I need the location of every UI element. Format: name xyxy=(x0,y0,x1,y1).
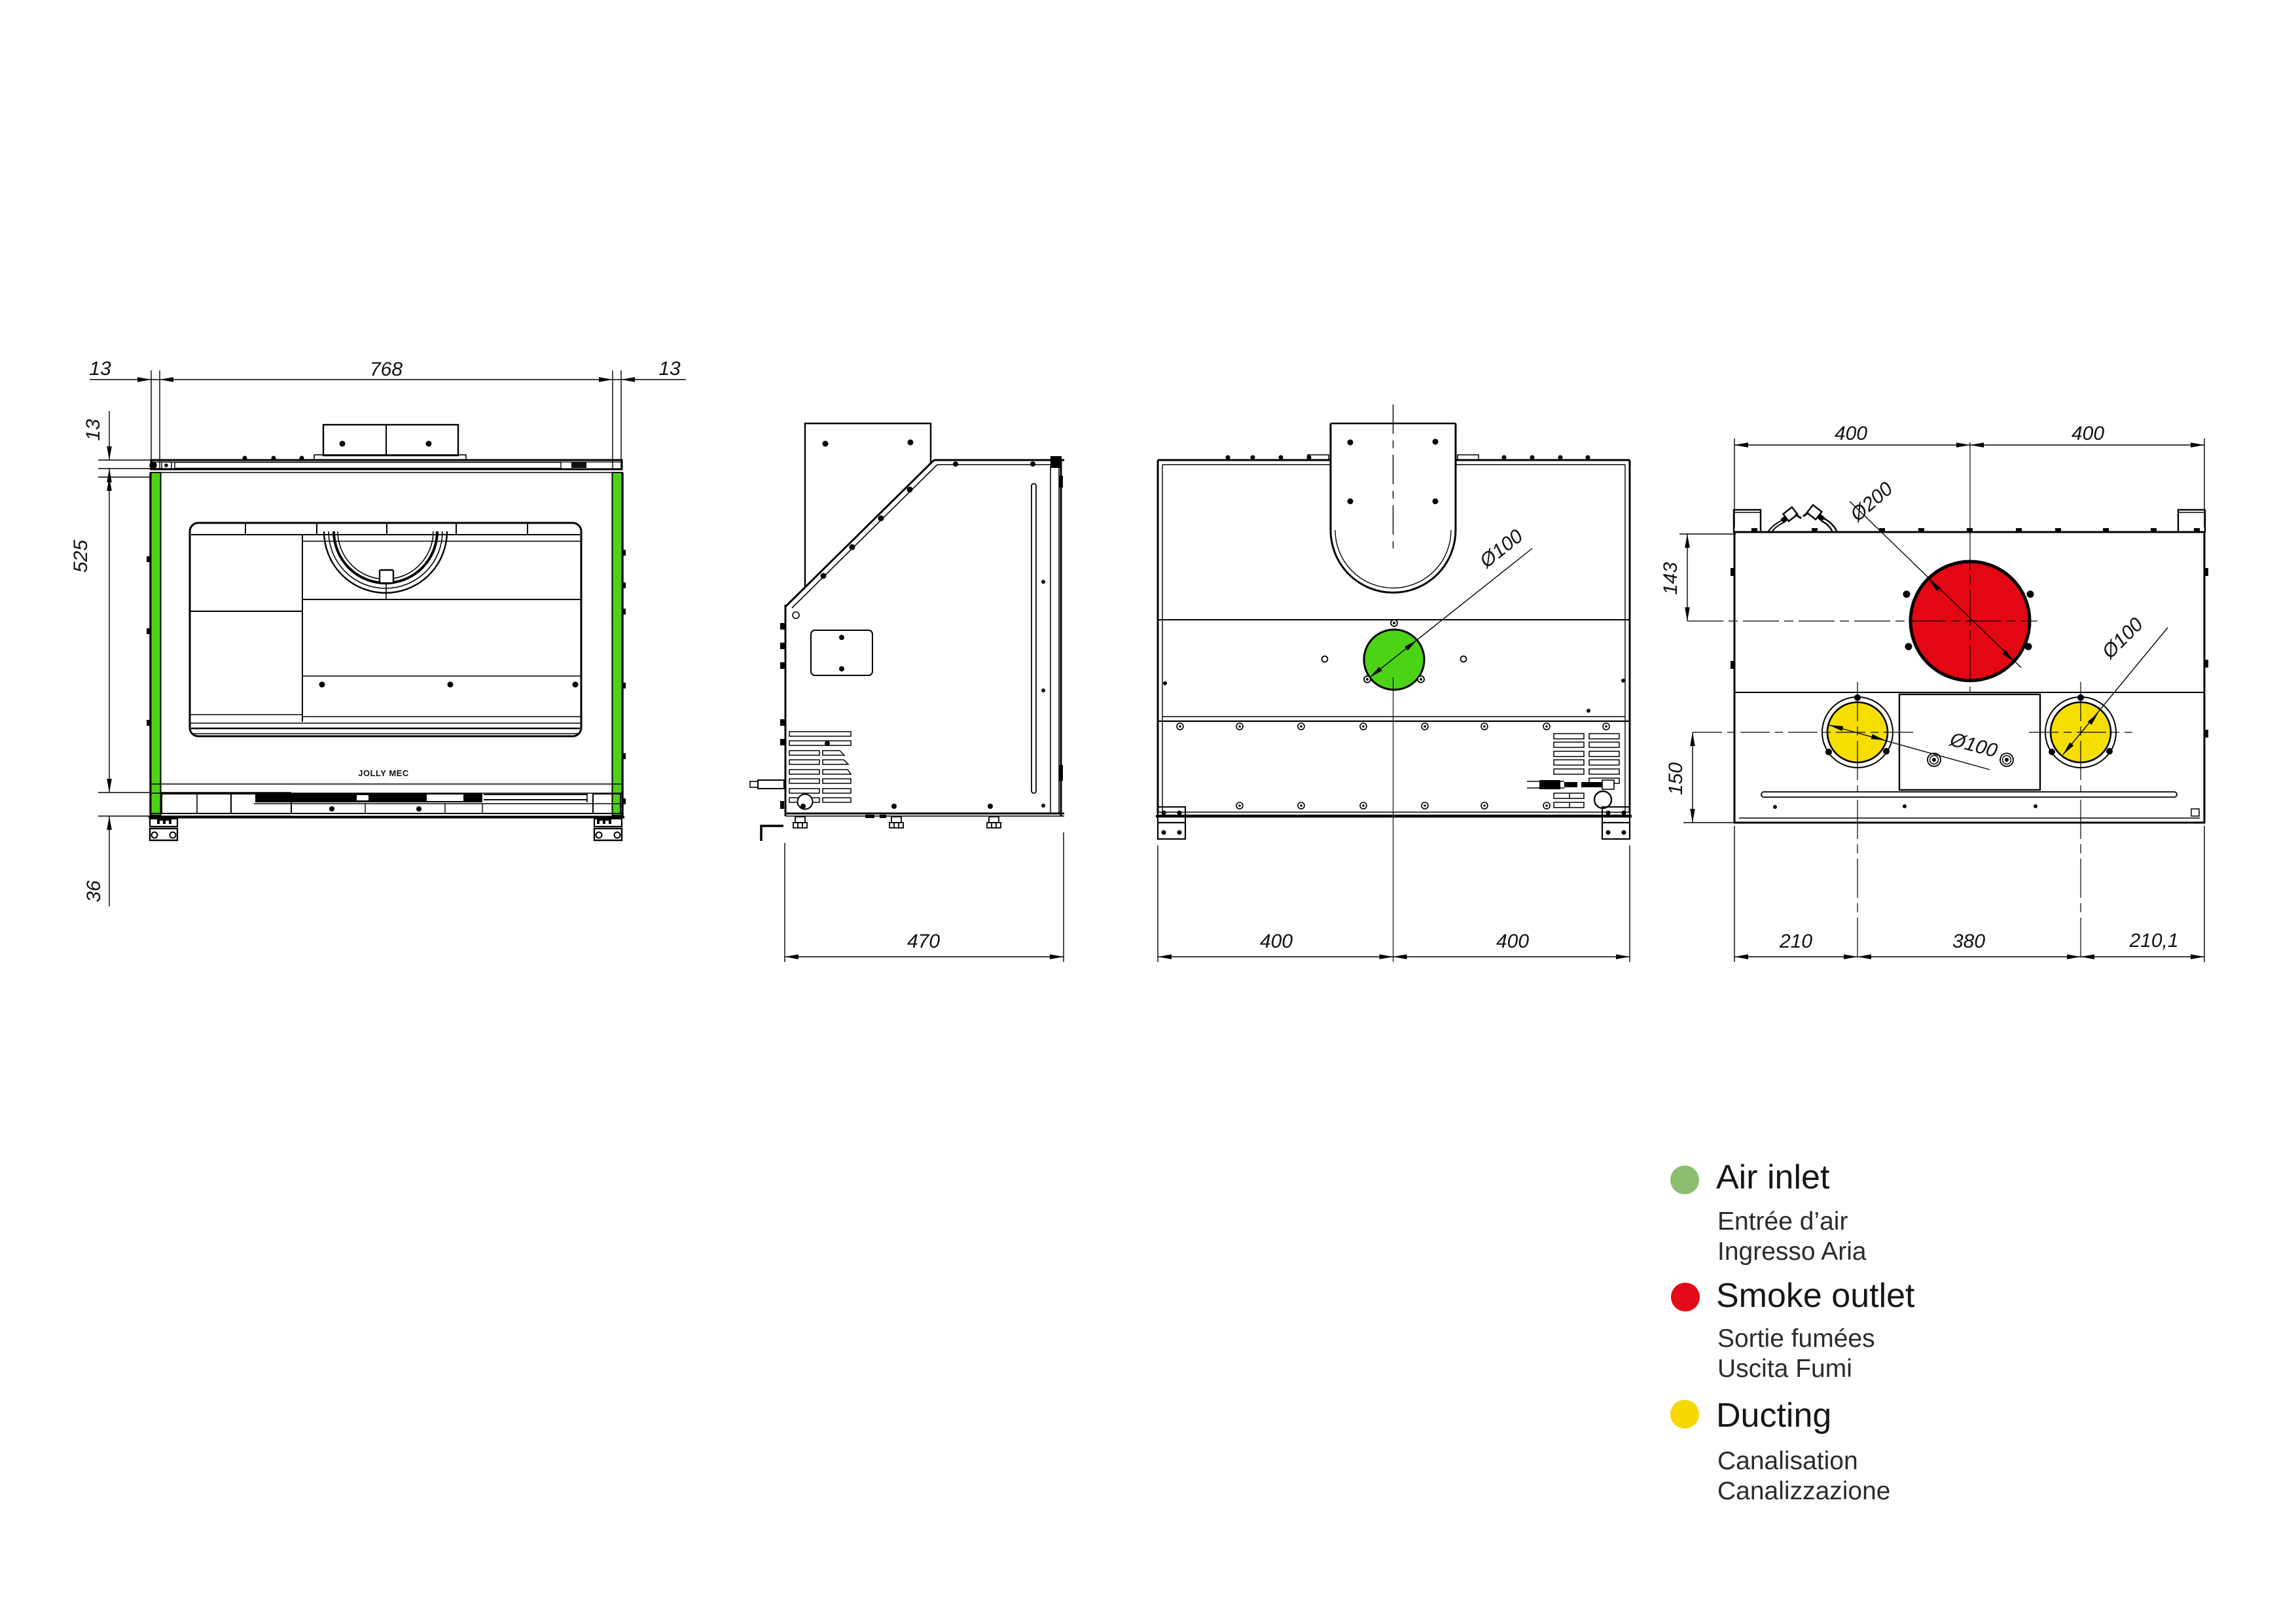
svg-text:13: 13 xyxy=(89,358,111,380)
svg-text:JOLLY MEC: JOLLY MEC xyxy=(358,768,409,778)
svg-text:400: 400 xyxy=(1260,931,1293,952)
svg-text:Uscita Fumi: Uscita Fumi xyxy=(1717,1355,1852,1383)
svg-text:143: 143 xyxy=(1660,562,1681,595)
svg-text:Sortie fumées: Sortie fumées xyxy=(1717,1325,1875,1353)
svg-text:400: 400 xyxy=(1496,931,1529,952)
svg-text:210,1: 210,1 xyxy=(2128,930,2178,952)
svg-text:150: 150 xyxy=(1665,762,1687,795)
svg-text:210: 210 xyxy=(1779,931,1812,952)
svg-text:470: 470 xyxy=(907,931,940,952)
svg-text:Ducting: Ducting xyxy=(1716,1397,1831,1435)
svg-text:380: 380 xyxy=(1952,931,1985,952)
svg-text:525: 525 xyxy=(70,540,92,573)
svg-text:Canalisation: Canalisation xyxy=(1717,1447,1858,1475)
svg-text:768: 768 xyxy=(370,359,403,380)
svg-text:13: 13 xyxy=(658,358,681,380)
svg-text:36: 36 xyxy=(83,880,105,902)
svg-text:Ingresso Aria: Ingresso Aria xyxy=(1717,1238,1867,1266)
svg-text:13: 13 xyxy=(82,419,104,441)
svg-text:Canalizzazione: Canalizzazione xyxy=(1717,1477,1891,1505)
svg-text:400: 400 xyxy=(1835,423,1867,444)
svg-text:Entrée d’air: Entrée d’air xyxy=(1717,1207,1848,1236)
svg-text:Smoke outlet: Smoke outlet xyxy=(1716,1277,1915,1315)
svg-text:Air inlet: Air inlet xyxy=(1716,1158,1830,1196)
svg-text:400: 400 xyxy=(2072,423,2104,444)
